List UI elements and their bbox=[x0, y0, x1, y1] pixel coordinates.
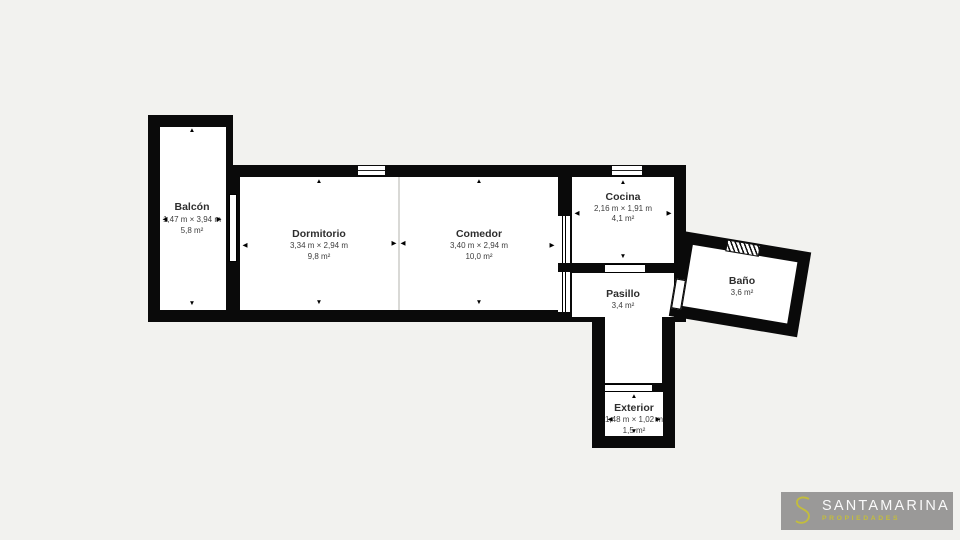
room-pasillo-area: 3,4 m² bbox=[612, 302, 635, 310]
dim-arrow-right-icon: ▶ bbox=[667, 211, 672, 218]
room-exterior-title: Exterior bbox=[614, 403, 654, 414]
room-balcon-area: 5,8 m² bbox=[181, 227, 204, 235]
room-cocina-title: Cocina bbox=[605, 192, 640, 203]
comedor-pasillo-door-icon bbox=[558, 272, 570, 312]
dim-arrow-down-icon: ▼ bbox=[316, 300, 322, 307]
room-exterior-dims: 1,48 m × 1,02 m bbox=[605, 416, 663, 424]
comedor-cocina-door-icon bbox=[558, 216, 570, 263]
dim-arrow-left-icon: ◀ bbox=[575, 211, 580, 218]
room-balcon-title: Balcón bbox=[174, 202, 209, 213]
cocina-window-icon bbox=[612, 166, 642, 175]
cocina-pasillo-opening-icon bbox=[605, 264, 645, 273]
room-comedor-area: 10,0 m² bbox=[465, 253, 492, 261]
dormitorio-window-icon bbox=[358, 166, 385, 175]
room-comedor-dims: 3,40 m × 2,94 m bbox=[450, 242, 508, 250]
dim-arrow-up-icon: ▲ bbox=[476, 179, 482, 186]
room-balcon-dims: 1,47 m × 3,94 m bbox=[163, 216, 221, 224]
dim-arrow-up-icon: ▲ bbox=[189, 128, 195, 135]
room-cocina-area: 4,1 m² bbox=[612, 215, 635, 223]
room-pasillo-title: Pasillo bbox=[606, 289, 640, 300]
room-dormitorio-area: 9,8 m² bbox=[308, 253, 331, 261]
room-bano-title: Baño bbox=[729, 276, 755, 287]
dim-arrow-right-icon: ▶ bbox=[217, 217, 222, 224]
room-dormitorio-dims: 3,34 m × 2,94 m bbox=[290, 242, 348, 250]
dim-arrow-down-icon: ▼ bbox=[620, 254, 626, 261]
dim-arrow-up-icon: ▲ bbox=[620, 180, 626, 187]
dim-arrow-right-icon: ▶ bbox=[656, 417, 661, 424]
corridor-exterior-opening-icon bbox=[605, 384, 652, 392]
dim-arrow-left-icon: ◀ bbox=[163, 217, 168, 224]
floorplan-canvas: Balcón 1,47 m × 3,94 m 5,8 m² Dormitorio… bbox=[0, 0, 960, 540]
room-dormitorio-title: Dormitorio bbox=[292, 229, 346, 240]
dim-arrow-left-icon: ◀ bbox=[243, 243, 248, 250]
dim-arrow-up-icon: ▲ bbox=[316, 179, 322, 186]
dim-arrow-up-icon: ▲ bbox=[631, 394, 637, 401]
dim-arrow-down-icon: ▼ bbox=[476, 300, 482, 307]
dim-arrow-down-icon: ▼ bbox=[631, 429, 637, 436]
dim-arrow-left-icon: ◀ bbox=[401, 241, 406, 248]
room-bano-area: 3,6 m² bbox=[731, 289, 754, 297]
room-comedor-title: Comedor bbox=[456, 229, 502, 240]
dim-arrow-right-icon: ▶ bbox=[550, 243, 555, 250]
dim-arrow-down-icon: ▼ bbox=[189, 301, 195, 308]
dim-arrow-left-icon: ◀ bbox=[608, 417, 613, 424]
agency-tagline: PROPIEDADES bbox=[822, 516, 950, 523]
balcony-door-icon bbox=[229, 194, 237, 262]
logo-s-icon bbox=[792, 495, 814, 527]
dim-arrow-right-icon: ▶ bbox=[392, 241, 397, 248]
agency-logo: SANTAMARINA PROPIEDADES bbox=[781, 492, 953, 530]
room-cocina-dims: 2,16 m × 1,91 m bbox=[594, 205, 652, 213]
agency-brand-name: SANTAMARINA bbox=[822, 499, 950, 514]
